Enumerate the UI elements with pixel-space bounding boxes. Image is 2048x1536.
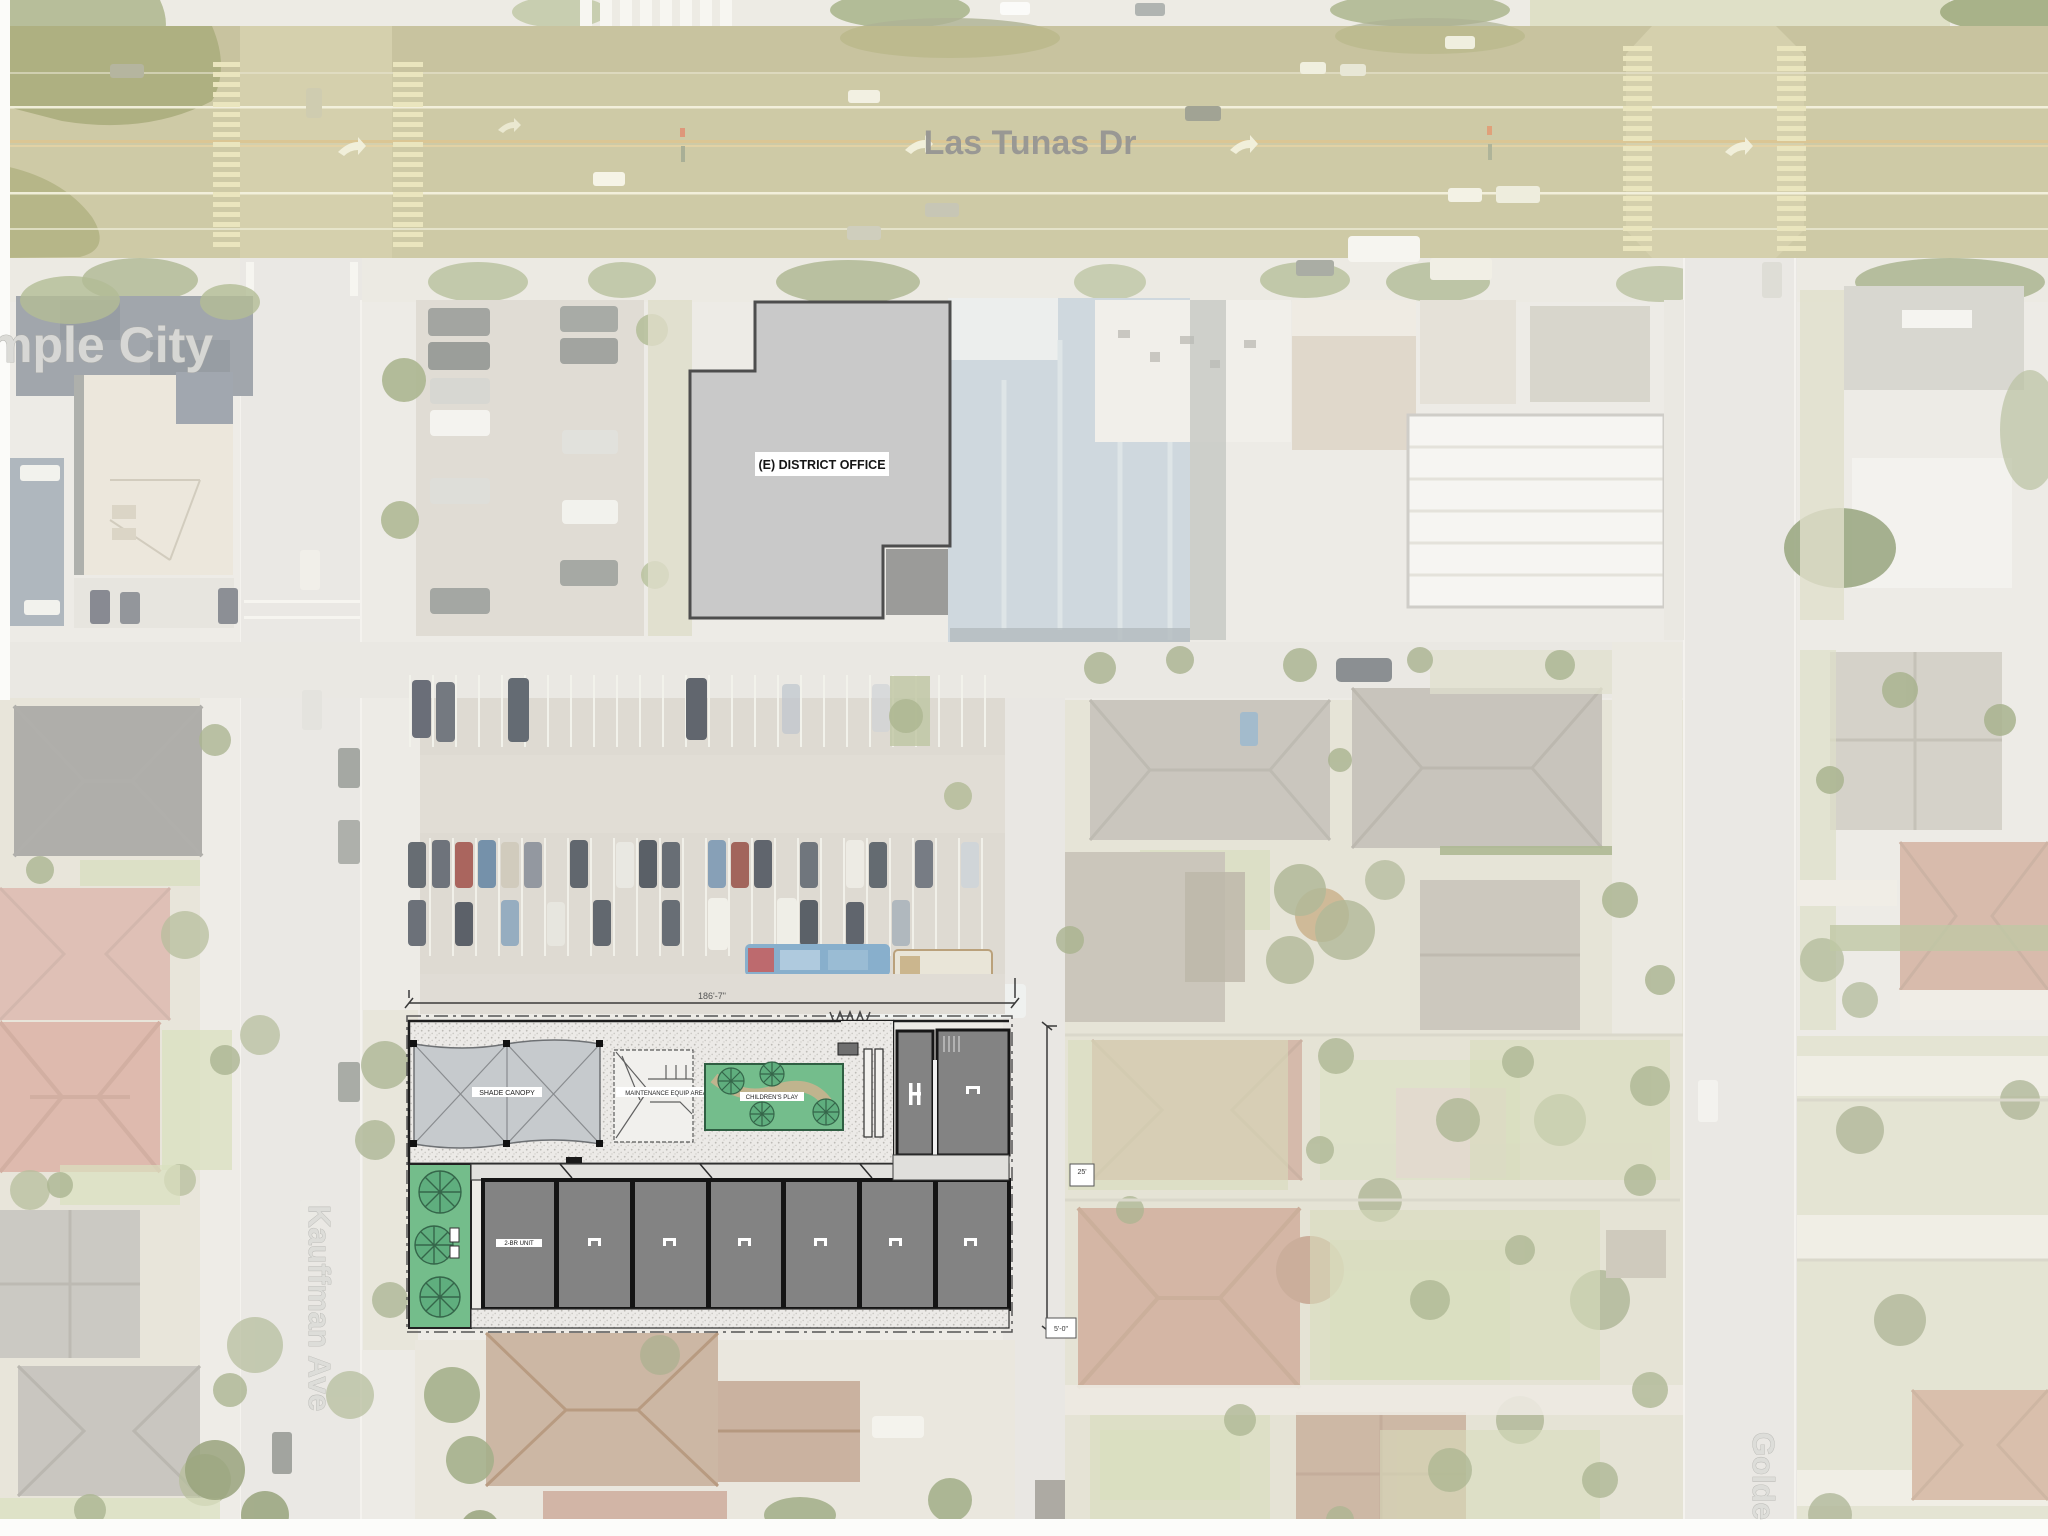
- svg-text:Kauffman Ave: Kauffman Ave: [302, 1205, 337, 1411]
- svg-text:25': 25': [1077, 1169, 1086, 1176]
- svg-text:5'-0": 5'-0": [1054, 1326, 1068, 1333]
- svg-text:MAINTENANCE EQUIP AREA: MAINTENANCE EQUIP AREA: [625, 1091, 707, 1097]
- svg-text:SHADE CANOPY: SHADE CANOPY: [479, 1090, 535, 1097]
- svg-text:CHILDREN'S PLAY: CHILDREN'S PLAY: [746, 1095, 798, 1101]
- svg-text:(E) DISTRICT OFFICE: (E) DISTRICT OFFICE: [758, 458, 885, 472]
- svg-text:186'-7": 186'-7": [698, 991, 726, 1001]
- svg-text:Golde: Golde: [1746, 1432, 1781, 1520]
- svg-text:2-BR UNIT: 2-BR UNIT: [504, 1241, 534, 1247]
- svg-text:mple City: mple City: [0, 317, 213, 373]
